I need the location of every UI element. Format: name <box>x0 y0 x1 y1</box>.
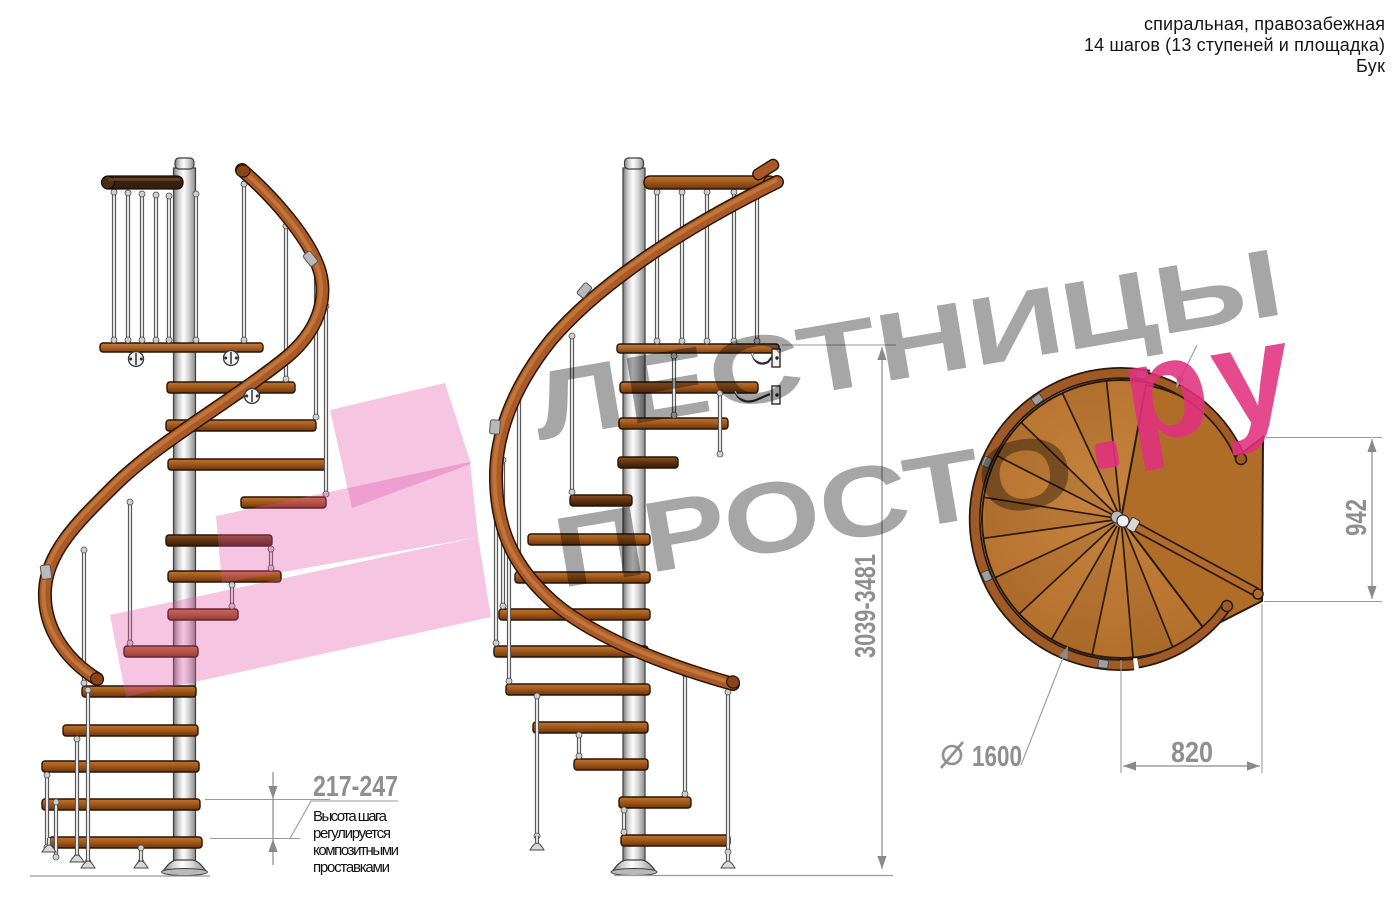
svg-text:Высота шага: Высота шага <box>313 808 388 825</box>
svg-text:3039-3481: 3039-3481 <box>850 554 882 658</box>
svg-text:942: 942 <box>1341 499 1373 536</box>
svg-text:регулируется: регулируется <box>313 825 391 842</box>
svg-text:1600: 1600 <box>972 741 1022 773</box>
svg-text:Бук: Бук <box>1356 56 1385 76</box>
svg-text:820: 820 <box>1171 737 1213 769</box>
svg-text:ру: ру <box>1110 289 1311 473</box>
svg-text:спиральная, правозабежная: спиральная, правозабежная <box>1144 14 1385 34</box>
svg-text:14 шагов (13 ступеней и площад: 14 шагов (13 ступеней и площадка) <box>1084 35 1385 55</box>
svg-text:композитными: композитными <box>313 842 399 859</box>
svg-text:проставками: проставками <box>313 859 390 876</box>
svg-text:217-247: 217-247 <box>313 771 398 803</box>
